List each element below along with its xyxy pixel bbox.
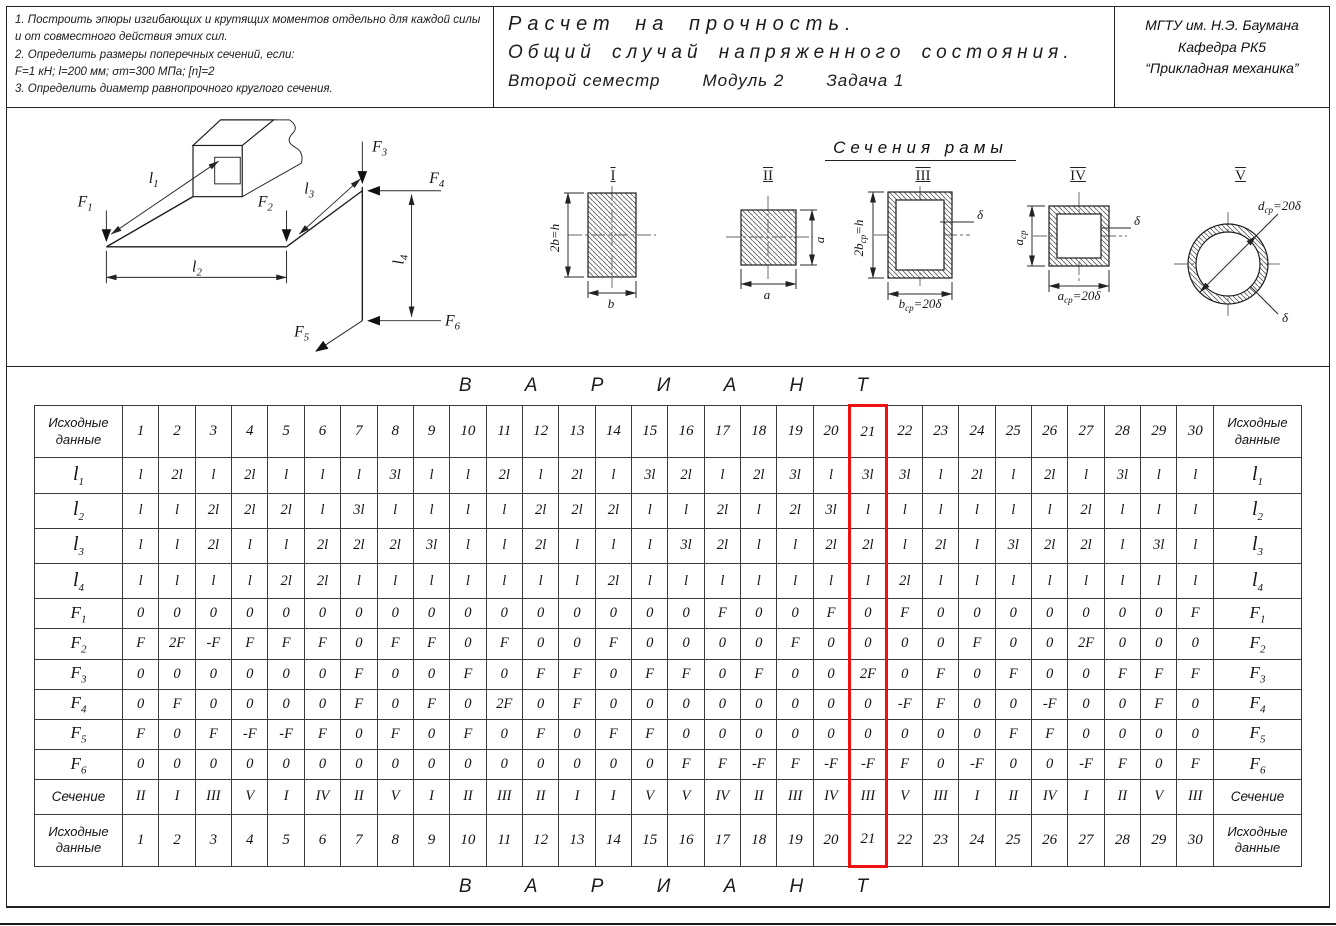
variant-number-25: 25 [995,406,1031,458]
value-cell: 0 [1141,599,1177,629]
row-label-f6: F6 [1214,750,1302,780]
value-cell: 2l [159,458,195,493]
value-cell: 0 [450,629,486,659]
sections-panel: Сечения рамы I b 2b=h [512,108,1329,366]
value-cell: 0 [486,719,522,749]
value-cell: 0 [1104,689,1140,719]
value-cell: 0 [959,719,995,749]
value-cell: 0 [632,629,668,659]
value-cell: 0 [559,629,595,659]
value-cell: 3l [413,528,449,563]
row-label-l1: l1 [35,458,123,493]
sections-title: Сечения рамы [825,138,1016,161]
value-cell: l [268,528,304,563]
variant-number-26: 26 [1031,814,1067,866]
value-cell: 0 [595,599,631,629]
section-1-height-label: 2b=h [547,224,562,252]
value-cell: V [886,780,922,814]
value-cell: l [1031,563,1067,598]
variant-number-1: 1 [123,406,159,458]
value-cell: 0 [595,750,631,780]
variant-number-23: 23 [922,814,958,866]
value-cell: l [741,493,777,528]
value-cell: 2l [559,493,595,528]
value-cell: 2F [159,629,195,659]
value-cell: l [377,563,413,598]
drawing-band: l1 l2 l3 l4 F1 F2 [7,108,1329,367]
value-cell: l [159,528,195,563]
value-cell: l [1177,493,1214,528]
force-label-f5: F5 [293,323,310,343]
section-4-width-label: aср=20δ [1058,288,1102,305]
value-cell: 0 [850,599,886,629]
section-numeral-4: IV [1066,168,1090,185]
row-label-l3: l3 [1214,528,1302,563]
section-3-height-label: 2bср=h [851,220,868,257]
variant-number-4: 4 [232,406,268,458]
variants-table: Исходные данные1234567891011121314151617… [34,404,1302,868]
fixed-end-box [193,120,302,197]
assignment-title: Расчет на прочность. Общий случай напряж… [494,7,1114,107]
value-cell: 2l [1031,528,1067,563]
force-label-f3: F3 [371,138,388,158]
value-cell: l [1068,458,1104,493]
value-cell: 2l [304,528,340,563]
value-cell: F [268,629,304,659]
table-row-l3: l3ll2lll2l2l2l3lll2llll3l2lll2l2ll2ll3l2… [35,528,1302,563]
value-cell: l [450,563,486,598]
value-cell: l [559,528,595,563]
corner-label: Исходные данные [35,406,123,458]
value-cell: l [232,528,268,563]
value-cell: 0 [595,689,631,719]
value-cell: -F [195,629,231,659]
value-cell: 0 [1068,689,1104,719]
variant-number-29: 29 [1141,814,1177,866]
section-figure-3: III δ bср=20δ [848,167,998,333]
force-label-f1: F1 [77,194,93,214]
value-cell: 2l [922,528,958,563]
value-cell: 0 [486,750,522,780]
variant-number-15: 15 [632,814,668,866]
value-cell: l [995,493,1031,528]
value-cell: l [595,458,631,493]
variant-number-16: 16 [668,406,704,458]
value-cell: l [995,563,1031,598]
value-cell: l [413,563,449,598]
variant-banner-bottom: В А Р И А Н Т [7,868,1329,907]
value-cell: l [850,563,886,598]
value-cell: 0 [1031,659,1067,689]
value-cell: F [450,659,486,689]
value-cell: 0 [1177,719,1214,749]
value-cell: 0 [195,599,231,629]
section-2-height-label: a [812,236,827,243]
value-cell: F [632,719,668,749]
variant-number-9: 9 [413,406,449,458]
title-line-3: Второй семестрМодуль 2Задача 1 [508,71,1110,91]
section-3-width-label: bср=20δ [899,296,943,313]
value-cell: I [159,780,195,814]
variant-number-30: 30 [1177,406,1214,458]
value-cell: l [1141,493,1177,528]
frame-diagram-svg: l1 l2 l3 l4 F1 F2 [7,112,507,364]
table-row-f6: F6000000000000000FF-FF-F-FF0-F00-FF0FF6 [35,750,1302,780]
value-cell: 0 [486,599,522,629]
value-cell: 0 [159,750,195,780]
value-cell: V [1141,780,1177,814]
value-cell: 0 [1031,599,1067,629]
value-cell: F [777,750,813,780]
value-cell: l [377,493,413,528]
variant-number-1: 1 [123,814,159,866]
value-cell: l [341,563,377,598]
variant-number-26: 26 [1031,406,1067,458]
section-2-drawing: a a [693,186,843,314]
variant-number-28: 28 [1104,814,1140,866]
variant-number-13: 13 [559,814,595,866]
table-row-f5: F5F0F-F-FF0F0F0F0FF000000000FF0000F5 [35,719,1302,749]
row-label-сечение: Сечение [1214,780,1302,814]
value-cell: 2l [741,458,777,493]
value-cell: l [1177,563,1214,598]
value-cell: 0 [1068,599,1104,629]
value-cell: 0 [1104,719,1140,749]
variant-number-28: 28 [1104,406,1140,458]
value-cell: 0 [813,629,849,659]
corner-label: Исходные данные [1214,814,1302,866]
value-cell: 0 [995,750,1031,780]
variant-number-3: 3 [195,406,231,458]
value-cell: 2l [668,458,704,493]
value-cell: 3l [341,493,377,528]
value-cell: I [559,780,595,814]
table-row-f1: F10000000000000000F00F0F0000000FF1 [35,599,1302,629]
variant-number-16: 16 [668,814,704,866]
value-cell: 0 [341,750,377,780]
value-cell: IV [304,780,340,814]
section-figure-2: II a a [693,167,843,333]
value-cell: 0 [413,750,449,780]
variant-number-21: 21 [850,406,886,458]
value-cell: l [1031,493,1067,528]
value-cell: 2l [195,493,231,528]
row-label-сечение: Сечение [35,780,123,814]
row-label-l1: l1 [1214,458,1302,493]
force-label-f6: F6 [444,313,461,333]
variant-number-6: 6 [304,814,340,866]
variant-number-14: 14 [595,814,631,866]
section-1-width-label: b [608,296,615,311]
value-cell: III [850,780,886,814]
section-4-height-label: aср [1011,230,1028,245]
section-numeral-2: II [759,168,777,185]
value-cell: F [595,629,631,659]
value-cell: 0 [450,689,486,719]
section-5-drawing: dср=20δ δ [1158,186,1323,328]
value-cell: 0 [1141,750,1177,780]
value-cell: II [450,780,486,814]
value-cell: l [704,563,740,598]
assignment-sheet: 1. Построить эпюры изгибающих и крутящих… [0,0,1336,926]
value-cell: 2l [232,458,268,493]
task-3: 3. Определить диаметр равнопрочного круг… [15,81,483,98]
value-cell: l [886,493,922,528]
variant-number-30: 30 [1177,814,1214,866]
variant-number-22: 22 [886,406,922,458]
title-block: 1. Построить эпюры изгибающих и крутящих… [7,7,1329,108]
table-row-f2: F2F2F-FFFF0FF0F00F0000F0000F002F000F2 [35,629,1302,659]
value-cell: 0 [1177,629,1214,659]
value-cell: l [813,563,849,598]
variant-numbers-row-bottom: Исходные данные1234567891011121314151617… [35,814,1302,866]
value-cell: 0 [1104,629,1140,659]
value-cell: 0 [522,629,558,659]
variant-number-23: 23 [922,406,958,458]
task-list: 1. Построить эпюры изгибающих и крутящих… [7,7,494,107]
value-cell: 0 [232,689,268,719]
value-cell: I [959,780,995,814]
value-cell: 2l [268,563,304,598]
value-cell: l [922,563,958,598]
value-cell: 0 [1141,629,1177,659]
value-cell: 0 [1031,750,1067,780]
value-cell: l [450,493,486,528]
variant-number-12: 12 [522,814,558,866]
value-cell: 2l [377,528,413,563]
variant-number-24: 24 [959,814,995,866]
value-cell: F [668,750,704,780]
value-cell: -F [741,750,777,780]
row-label-f1: F1 [1214,599,1302,629]
variant-number-10: 10 [450,406,486,458]
value-cell: l [1141,563,1177,598]
value-cell: II [522,780,558,814]
value-cell: F [1177,659,1214,689]
value-cell: 2l [959,458,995,493]
value-cell: 2F [486,689,522,719]
value-cell: l [741,563,777,598]
section-2-width-label: a [764,287,771,302]
force-label-f2: F2 [257,194,274,214]
value-cell: 2l [704,493,740,528]
value-cell: 0 [922,750,958,780]
frame-diagram: l1 l2 l3 l4 F1 F2 [7,108,512,366]
value-cell: 3l [1104,458,1140,493]
value-cell: l [1177,458,1214,493]
row-label-f3: F3 [1214,659,1302,689]
row-label-f2: F2 [1214,629,1302,659]
page-frame: 1. Построить эпюры изгибающих и крутящих… [6,6,1330,908]
value-cell: II [1104,780,1140,814]
value-cell: F [632,659,668,689]
table-row-l2: l2ll2l2l2ll3lllll2l2l2lll2ll2l3lllllll2l… [35,493,1302,528]
value-cell: F [195,719,231,749]
value-cell: 0 [1031,629,1067,659]
value-cell: F [741,659,777,689]
value-cell: l [304,493,340,528]
value-cell: 2l [341,528,377,563]
semester-label: Второй семестр [508,71,660,90]
value-cell: l [777,563,813,598]
value-cell: 0 [341,719,377,749]
variant-number-20: 20 [813,814,849,866]
value-cell: l [159,563,195,598]
value-cell: 0 [450,599,486,629]
value-cell: 2l [1068,528,1104,563]
variants-table-wrap: Исходные данные1234567891011121314151617… [7,404,1329,868]
value-cell: 2F [850,659,886,689]
value-cell: 0 [559,599,595,629]
value-cell: 2l [595,563,631,598]
value-cell: -F [232,719,268,749]
value-cell: 2l [813,528,849,563]
value-cell: F [486,629,522,659]
value-cell: l [123,563,159,598]
value-cell: F [1104,659,1140,689]
value-cell: F [123,629,159,659]
section-5-thickness-label: δ [1282,310,1289,325]
value-cell: l [486,493,522,528]
value-cell: 0 [1177,689,1214,719]
variant-number-14: 14 [595,406,631,458]
value-cell: l [522,458,558,493]
value-cell: 0 [1141,719,1177,749]
value-cell: 0 [1104,599,1140,629]
value-cell: 0 [341,629,377,659]
value-cell: III [486,780,522,814]
value-cell: l [850,493,886,528]
value-cell: 0 [632,599,668,629]
variant-number-3: 3 [195,814,231,866]
section-3-thickness-label: δ [977,207,984,222]
title-line-2: Общий случай напряженного состояния. [508,42,1110,64]
value-cell: l [486,528,522,563]
value-cell: 0 [777,719,813,749]
value-cell: 0 [668,689,704,719]
variant-number-5: 5 [268,814,304,866]
value-cell: 2l [232,493,268,528]
value-cell: 3l [777,458,813,493]
value-cell: l [123,528,159,563]
value-cell: F [123,719,159,749]
variant-number-20: 20 [813,406,849,458]
value-cell: 2l [1031,458,1067,493]
variant-number-27: 27 [1068,814,1104,866]
value-cell: V [377,780,413,814]
variant-number-24: 24 [959,406,995,458]
variant-number-2: 2 [159,406,195,458]
value-cell: 0 [304,689,340,719]
value-cell: 0 [995,689,1031,719]
value-cell: 0 [886,659,922,689]
value-cell: 0 [123,599,159,629]
value-cell: 0 [704,689,740,719]
value-cell: 0 [522,599,558,629]
value-cell: III [922,780,958,814]
value-cell: 2l [522,493,558,528]
title-line-1: Расчет на прочность. [508,13,1110,36]
row-label-l2: l2 [35,493,123,528]
value-cell: F [704,599,740,629]
variant-number-13: 13 [559,406,595,458]
value-cell: l [777,528,813,563]
value-cell: 2l [486,458,522,493]
variant-number-25: 25 [995,814,1031,866]
variant-number-5: 5 [268,406,304,458]
value-cell: l [195,563,231,598]
value-cell: 0 [1068,659,1104,689]
value-cell: F [522,659,558,689]
length-label-l4: l4 [391,254,411,264]
value-cell: l [522,563,558,598]
value-cell: 0 [268,689,304,719]
value-cell: 0 [232,750,268,780]
value-cell: F [922,659,958,689]
row-label-l3: l3 [35,528,123,563]
value-cell: F [341,659,377,689]
value-cell: F [232,629,268,659]
value-cell: l [959,563,995,598]
variant-number-9: 9 [413,814,449,866]
value-cell: F [1141,689,1177,719]
value-cell: 0 [1068,719,1104,749]
value-cell: F [559,689,595,719]
value-cell: 0 [123,659,159,689]
value-cell: 0 [159,719,195,749]
section-1-drawing: b 2b=h [538,186,688,314]
variant-number-22: 22 [886,814,922,866]
row-label-f6: F6 [35,750,123,780]
value-cell: 0 [704,659,740,689]
value-cell: 3l [632,458,668,493]
value-cell: 0 [268,599,304,629]
value-cell: l [668,563,704,598]
value-cell: 3l [886,458,922,493]
value-cell: l [1104,563,1140,598]
section-figure-5: V dср=20δ δ [1158,167,1323,333]
value-cell: 2l [559,458,595,493]
value-cell: 0 [522,750,558,780]
value-cell: 0 [195,659,231,689]
value-cell: F [1141,659,1177,689]
row-label-l2: l2 [1214,493,1302,528]
value-cell: l [123,458,159,493]
value-cell: 0 [123,689,159,719]
variant-number-11: 11 [486,814,522,866]
value-cell: 0 [777,659,813,689]
value-cell: l [450,458,486,493]
value-cell: 0 [195,689,231,719]
variant-number-19: 19 [777,406,813,458]
length-label-l1: l1 [149,170,159,190]
variant-number-2: 2 [159,814,195,866]
value-cell: 0 [413,659,449,689]
value-cell: 0 [377,659,413,689]
value-cell: 0 [922,599,958,629]
value-cell: F [450,719,486,749]
value-cell: F [1031,719,1067,749]
section-4-thickness-label: δ [1134,213,1141,228]
value-cell: 0 [704,719,740,749]
variant-number-17: 17 [704,814,740,866]
value-cell: 0 [704,629,740,659]
value-cell: 0 [232,599,268,629]
value-cell: l [595,528,631,563]
value-cell: 0 [304,659,340,689]
section-figure-1: I b 2b=h [538,167,688,333]
chair-name: “Прикладная механика” [1115,58,1329,80]
